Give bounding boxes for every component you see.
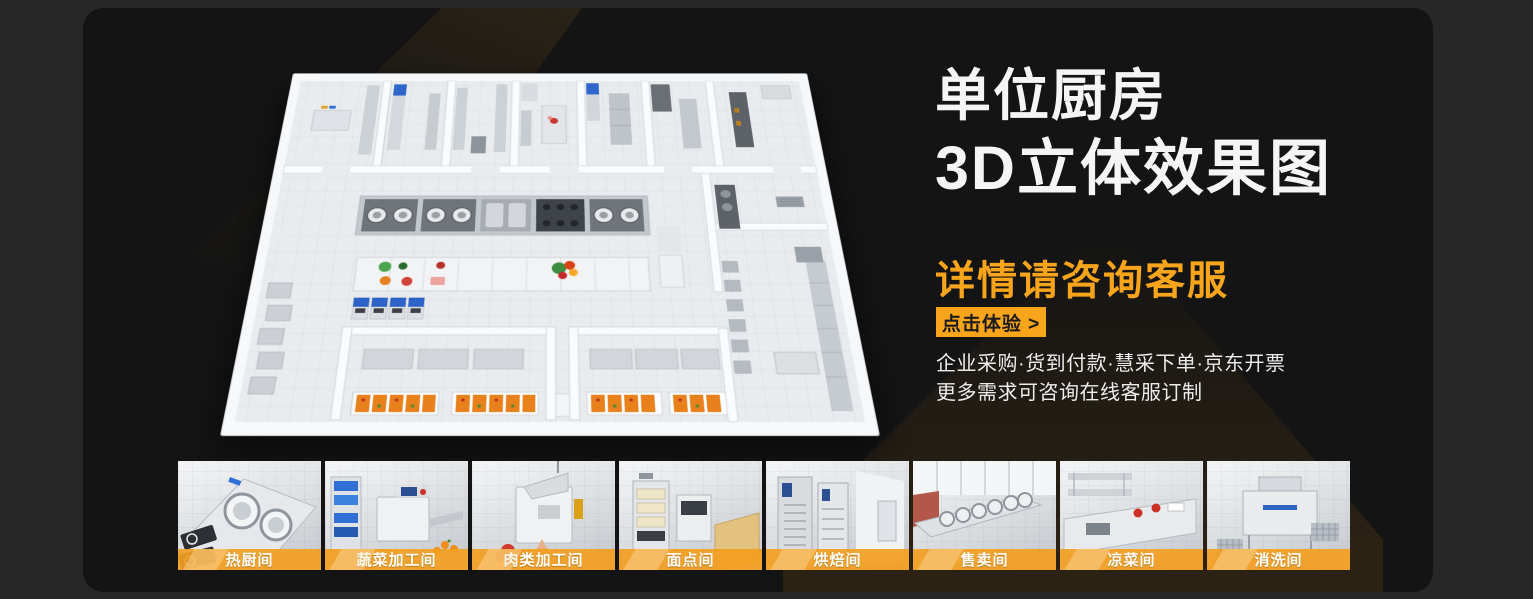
thumbnail-label: 热厨间 (178, 549, 321, 570)
title-line-2: 3D立体效果图 (935, 130, 1332, 206)
thumbnail-sales-room[interactable]: 售卖间 (913, 461, 1056, 570)
thumbnail-washing-room[interactable]: 消洗间 (1207, 461, 1350, 570)
corridor-wall (283, 165, 817, 174)
thumbnail-baking-room[interactable]: 烘焙间 (766, 461, 909, 570)
title-line-1: 单位厨房 (935, 62, 1332, 130)
info-lines: 企业采购·货到付款·慧采下单·京东开票 更多需求可咨询在线客服订制 (936, 350, 1285, 408)
page-title: 单位厨房 3D立体效果图 (935, 62, 1332, 206)
thumbnail-label: 凉菜间 (1060, 549, 1203, 570)
thumbnail-label: 消洗间 (1207, 549, 1350, 570)
banner-stage: 单位厨房 3D立体效果图 详情请咨询客服 点击体验 > 企业采购·货到付款·慧采… (0, 0, 1533, 599)
info-line-2: 更多需求可咨询在线客服订制 (936, 379, 1285, 408)
thumbnail-label: 面点间 (619, 549, 762, 570)
thumbnail-meat-processing[interactable]: 肉类加工间 (472, 461, 615, 570)
thumbnail-label: 蔬菜加工间 (325, 549, 468, 570)
room-thumbnail-row: 热厨间 蔬菜加工间 (178, 461, 1350, 570)
cta-button[interactable]: 点击体验 > (936, 307, 1046, 337)
thumbnail-label: 售卖间 (913, 549, 1056, 570)
kitchen-3d-floorplan (220, 73, 880, 436)
info-line-1: 企业采购·货到付款·慧采下单·京东开票 (936, 350, 1285, 379)
thumbnail-label: 肉类加工间 (472, 549, 615, 570)
thumbnail-cold-dish-room[interactable]: 凉菜间 (1060, 461, 1203, 570)
subtitle-consult: 详情请咨询客服 (935, 248, 1229, 306)
thumbnail-label: 烘焙间 (766, 549, 909, 570)
thumbnail-pastry-room[interactable]: 面点间 (619, 461, 762, 570)
thumbnail-vegetable-processing[interactable]: 蔬菜加工间 (325, 461, 468, 570)
promo-banner-card: 单位厨房 3D立体效果图 详情请咨询客服 点击体验 > 企业采购·货到付款·慧采… (83, 8, 1433, 592)
kitchen-3d-floorplan-drawing (220, 73, 880, 436)
cook-line (355, 196, 650, 235)
thumbnail-hot-kitchen[interactable]: 热厨间 (178, 461, 321, 570)
prep-counter (353, 257, 650, 291)
